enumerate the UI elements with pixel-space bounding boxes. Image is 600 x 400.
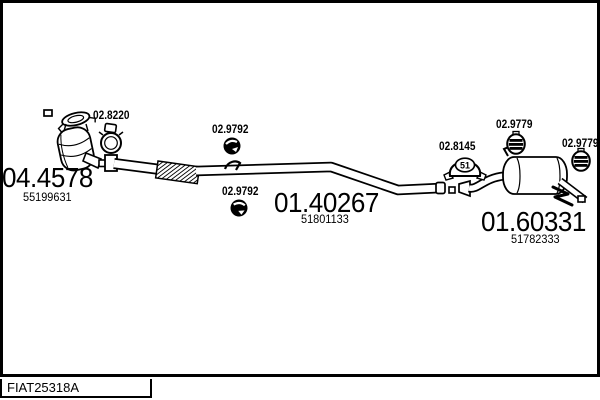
fitting-code-clamp-rear: 02.8145 xyxy=(439,140,475,152)
fitting-code-hanger-right: 02.9779 xyxy=(562,137,598,149)
rubber-hanger-icon-left xyxy=(507,132,525,154)
drawing-code: FIAT25318A xyxy=(7,380,79,395)
oe-number-catalyst: 55199631 xyxy=(23,193,72,205)
oe-number-centre-pipe: 51801133 xyxy=(301,215,349,227)
part-code-centre-pipe: 01.40267 xyxy=(274,189,379,217)
clamp-icon-front xyxy=(99,123,123,153)
drawing-code-box: FIAT25318A xyxy=(0,379,152,398)
clamp-icon-rear: 51 xyxy=(444,158,486,180)
fitting-code-mount-lower: 02.9792 xyxy=(222,185,258,197)
gasket-icon-left xyxy=(44,110,52,116)
rubber-mount-icon-lower xyxy=(229,198,250,219)
fitting-code-mount-upper: 02.9792 xyxy=(212,123,248,135)
oe-number-rear-silencer: 51782333 xyxy=(511,235,560,247)
fitting-code-clamp-front: 02.8220 xyxy=(93,109,129,121)
part-code-catalyst: 04.4578 xyxy=(2,164,93,192)
fitting-code-hanger-left: 02.9779 xyxy=(496,118,532,130)
rubber-mount-icon-upper xyxy=(224,138,241,155)
tailpipe-end-square-icon xyxy=(578,196,585,202)
rubber-hanger-icon-right xyxy=(572,149,590,171)
part-code-rear-silencer: 01.60331 xyxy=(481,208,586,236)
connector-square-icon-rear xyxy=(449,187,455,193)
clamp-size-label: 51 xyxy=(460,161,470,171)
flex-pipe-drawing xyxy=(156,161,200,184)
